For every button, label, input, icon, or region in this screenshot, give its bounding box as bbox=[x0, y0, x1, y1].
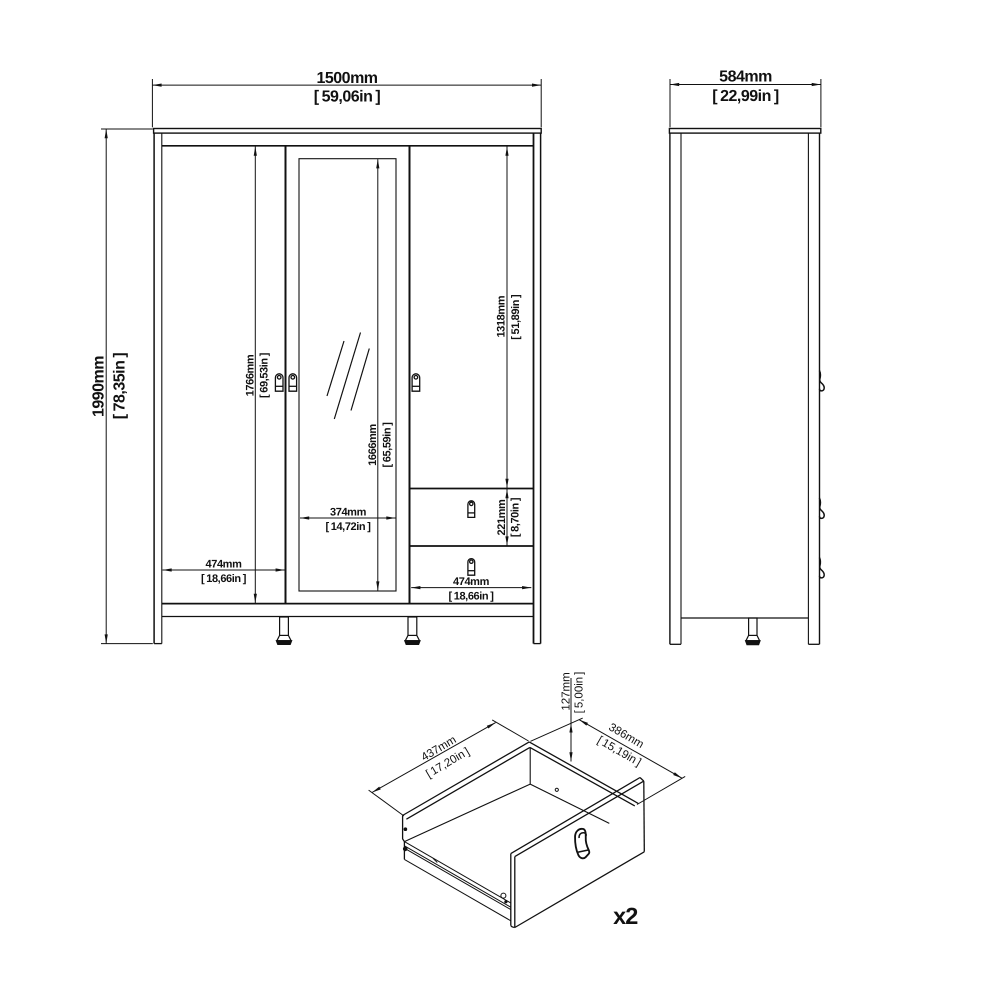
svg-text:474mm: 474mm bbox=[206, 559, 243, 571]
svg-text:x2: x2 bbox=[613, 903, 638, 929]
svg-text:[18,66in]: [18,66in] bbox=[448, 591, 494, 603]
svg-text:1318mm: 1318mm bbox=[496, 295, 508, 337]
svg-text:[78,35in]: [78,35in] bbox=[111, 353, 128, 420]
svg-text:[18,66in]: [18,66in] bbox=[201, 573, 247, 585]
svg-text:[22,99in]: [22,99in] bbox=[712, 88, 779, 105]
svg-text:[65,59in]: [65,59in] bbox=[381, 422, 393, 468]
svg-text:1990mm: 1990mm bbox=[91, 356, 108, 417]
svg-text:[59,06in]: [59,06in] bbox=[314, 89, 381, 106]
svg-text:374mm: 374mm bbox=[330, 507, 367, 519]
svg-text:221mm: 221mm bbox=[496, 499, 508, 536]
svg-text:1766mm: 1766mm bbox=[244, 354, 256, 396]
svg-text:1666mm: 1666mm bbox=[367, 424, 379, 466]
svg-text:[14,72in]: [14,72in] bbox=[325, 521, 371, 533]
svg-text:127mm: 127mm bbox=[560, 672, 572, 710]
svg-text:1500mm: 1500mm bbox=[316, 70, 377, 87]
svg-text:[5,00in]: [5,00in] bbox=[573, 672, 585, 714]
svg-text:[69,53in]: [69,53in] bbox=[258, 352, 270, 398]
svg-text:474mm: 474mm bbox=[453, 576, 490, 588]
svg-text:[8,70in]: [8,70in] bbox=[510, 497, 522, 537]
svg-text:[51,89in]: [51,89in] bbox=[510, 294, 522, 340]
svg-text:584mm: 584mm bbox=[719, 68, 772, 85]
